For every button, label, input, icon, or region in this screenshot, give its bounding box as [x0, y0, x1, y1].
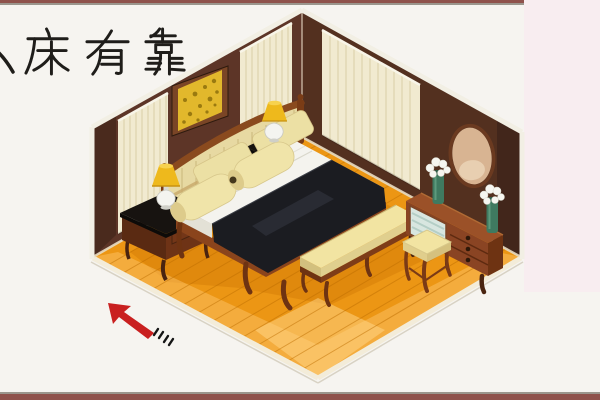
caption-char-kao	[146, 29, 184, 74]
caption-calligraphy	[0, 0, 210, 92]
background-tint	[524, 0, 600, 292]
caption-char-you	[87, 31, 128, 74]
caption-partial-char	[0, 52, 13, 72]
red-arrow-icon	[108, 303, 173, 345]
page-root: { "caption": { "text": "床有靠", "partial_l…	[0, 0, 600, 400]
caption-char-chuang	[26, 29, 68, 74]
arrow-dashes	[154, 329, 173, 345]
